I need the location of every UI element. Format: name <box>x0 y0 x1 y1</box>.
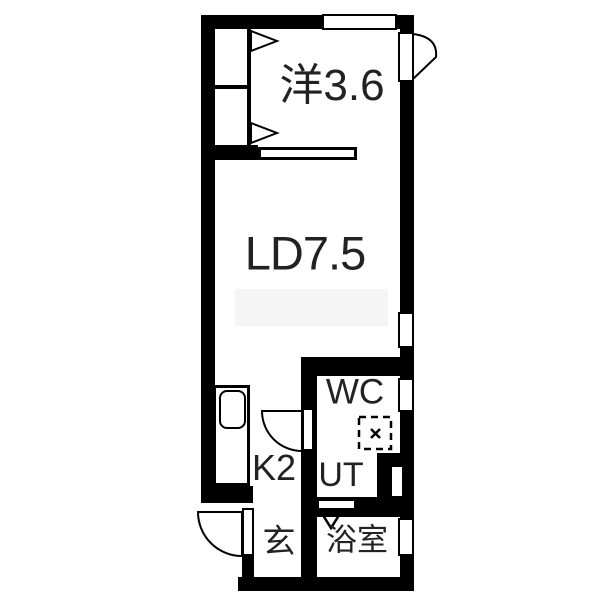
door-leaf-bath <box>316 498 357 511</box>
wall-entrance-stub <box>242 554 254 577</box>
wall-kitchen-wc <box>301 357 317 591</box>
label-utility: UT <box>318 458 363 492</box>
label-bathroom: 浴室 <box>326 525 388 556</box>
wall-western-ld <box>201 145 258 160</box>
label-kitchen: K2 <box>252 450 296 486</box>
casement-window-fan-icon <box>413 34 436 79</box>
window-wc-right <box>398 378 414 412</box>
door-leaf-wc <box>302 408 314 451</box>
kitchen-sink <box>219 390 246 429</box>
label-toilet: WC <box>326 375 384 410</box>
window-casement-right <box>398 32 414 82</box>
sliding-door-western <box>258 147 357 160</box>
wc-door-swing-icon <box>262 411 302 451</box>
entrance-door-swing-icon <box>198 512 242 556</box>
watermark <box>235 289 388 326</box>
closet-front-line <box>247 29 251 145</box>
floorplan-canvas: 洋3.6 LD7.5 K2 WC UT 玄 浴室 <box>0 0 600 600</box>
wall-kitchen-entrance <box>201 486 253 503</box>
label-entrance: 玄 <box>263 525 296 558</box>
window-utility-slot <box>390 465 404 498</box>
label-living-dining: LD7.5 <box>245 230 365 277</box>
window-ld-right <box>398 312 414 348</box>
wall-exterior-bottom <box>238 577 414 591</box>
door-leaf-entrance <box>242 508 254 556</box>
label-western-room: 洋3.6 <box>279 64 384 108</box>
washing-machine-pan-icon <box>359 417 391 449</box>
closet-divider-line <box>215 85 247 89</box>
closet-fold-door-icon <box>251 31 277 143</box>
window-top-wall <box>322 14 397 30</box>
window-bath-right <box>398 518 414 556</box>
